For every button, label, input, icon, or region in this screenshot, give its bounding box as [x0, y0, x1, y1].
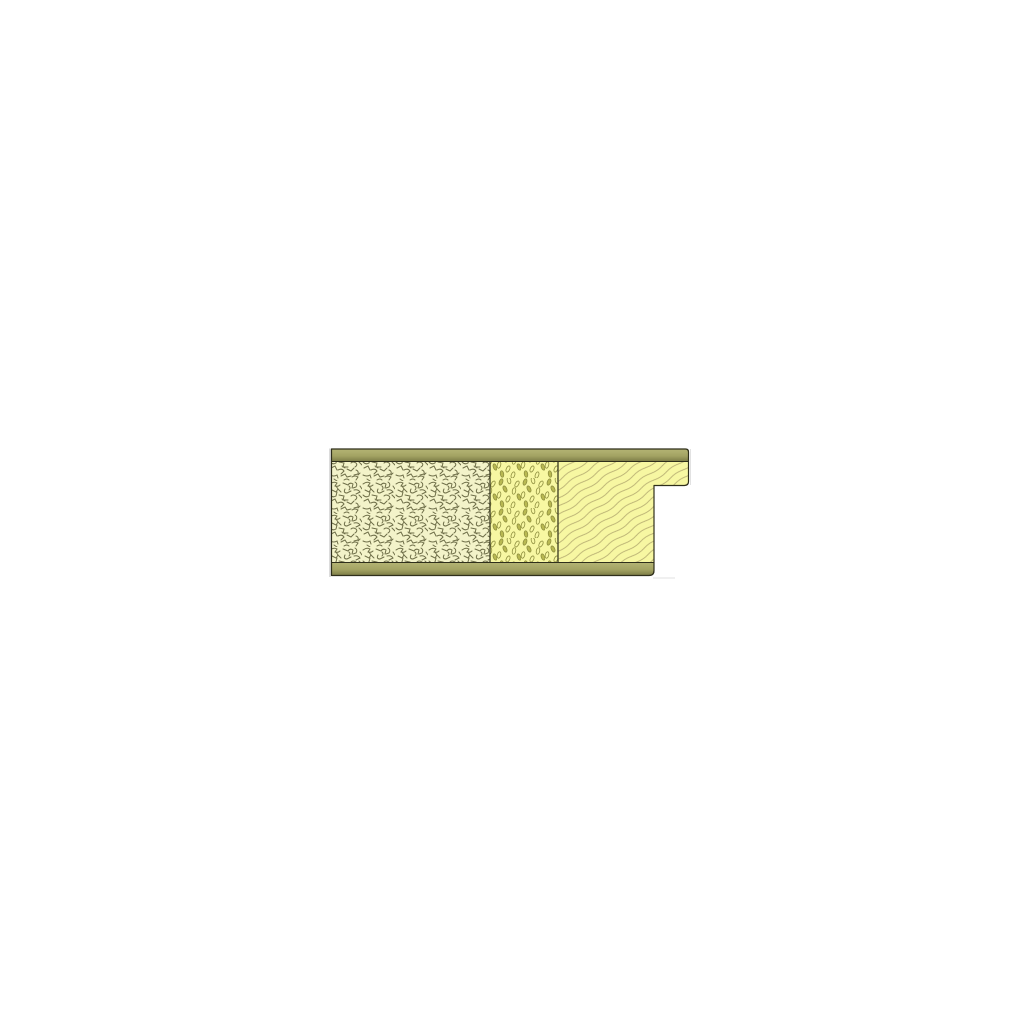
- bottom-skin-board: [332, 563, 655, 576]
- rigid-insulation-core: [490, 462, 558, 563]
- rigid-insulation-dot-hatch: [490, 462, 558, 563]
- top-skin-board: [332, 449, 689, 462]
- wood-grain-hatch: [554, 458, 693, 568]
- timber-edge-member: [554, 458, 693, 568]
- loose-fill-insulation-core: [332, 462, 491, 563]
- drawing-canvas: [0, 0, 1024, 1024]
- insulation-squiggle-hatch: [332, 462, 491, 563]
- panel-section-detail: [329, 448, 693, 582]
